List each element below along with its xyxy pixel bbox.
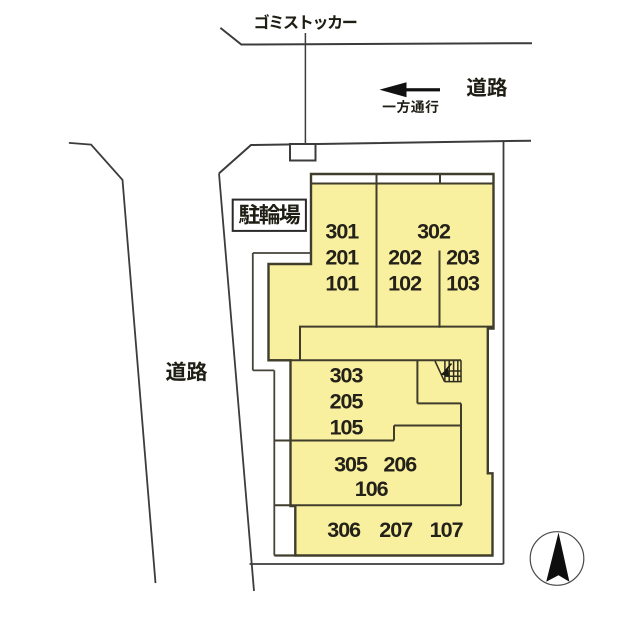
svg-text:205: 205 [330, 390, 364, 414]
svg-text:101: 101 [325, 272, 359, 296]
svg-text:202: 202 [388, 246, 422, 270]
svg-text:306: 306 [327, 518, 361, 542]
svg-text:107: 107 [430, 518, 464, 542]
svg-text:305: 305 [334, 452, 368, 476]
svg-text:103: 103 [446, 272, 480, 296]
svg-text:203: 203 [446, 246, 480, 270]
svg-text:302: 302 [417, 220, 451, 244]
svg-text:105: 105 [330, 416, 364, 440]
svg-text:303: 303 [330, 364, 364, 388]
svg-text:207: 207 [379, 518, 413, 542]
svg-text:106: 106 [355, 477, 389, 501]
svg-text:102: 102 [388, 272, 422, 296]
svg-text:301: 301 [325, 220, 359, 244]
svg-text:201: 201 [325, 246, 359, 270]
svg-text:206: 206 [383, 452, 417, 476]
